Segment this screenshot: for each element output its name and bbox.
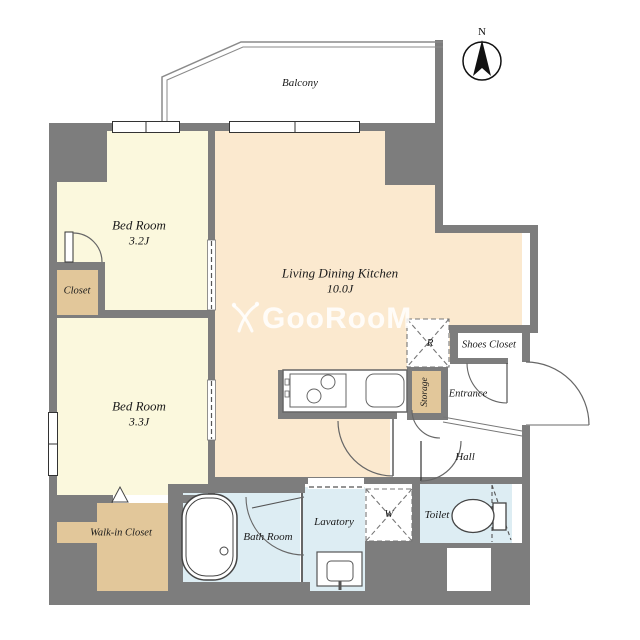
floor-plan: GooRooM Balcony N Bed Room 3.2J Bed Room… bbox=[0, 0, 640, 640]
lavatory-label: Lavatory bbox=[314, 516, 354, 530]
ldk-name: Living Dining Kitchen bbox=[282, 265, 398, 281]
ldk-label: Living Dining Kitchen 10.0J bbox=[282, 265, 398, 296]
storage-label: Storage bbox=[420, 377, 432, 407]
room-ldk bbox=[215, 131, 385, 185]
room-ldk bbox=[215, 185, 435, 233]
watermark: GooRooM bbox=[230, 302, 412, 336]
wall-partition-bedrooms-ldk bbox=[208, 131, 215, 495]
wall-shoes-bottom bbox=[450, 358, 508, 364]
wall-walkin-bath-column bbox=[168, 484, 183, 591]
bedroom-2-label: Bed Room 3.3J bbox=[112, 398, 166, 429]
refrigerator-label: R bbox=[427, 337, 434, 351]
wall-right-upper bbox=[530, 233, 538, 333]
ldk-size: 10.0J bbox=[282, 282, 398, 297]
bedroom-1-size: 3.2J bbox=[112, 234, 166, 249]
bedroom-2-name: Bed Room bbox=[112, 398, 166, 414]
wall-counter-stub bbox=[278, 370, 283, 419]
watermark-text: GooRooM bbox=[262, 302, 412, 336]
bedroom-2-size: 3.3J bbox=[112, 415, 166, 430]
wall-under-counter bbox=[283, 410, 397, 419]
wall-walkin-left-top bbox=[57, 503, 97, 522]
wall-bottom bbox=[49, 591, 530, 605]
wall-shoes-top bbox=[449, 325, 530, 333]
wall-bath-bottom bbox=[168, 582, 310, 591]
wall-top bbox=[49, 123, 443, 131]
wall-lavatory-toilet bbox=[412, 484, 420, 543]
wall-ldk-bottom bbox=[215, 477, 522, 484]
room-hall bbox=[397, 419, 448, 477]
walkin-closet-label: Walk-in Closet bbox=[90, 526, 152, 539]
wall-closet-right bbox=[98, 262, 105, 315]
north-label: N bbox=[478, 26, 486, 38]
entrance-door-icon bbox=[526, 362, 589, 425]
shoes-closet-label: Shoes Closet bbox=[462, 338, 516, 351]
wall-top-left-notch bbox=[57, 131, 107, 182]
bedroom-1-label: Bed Room 3.2J bbox=[112, 217, 166, 248]
wall-walkin-left-bottom bbox=[57, 543, 97, 591]
bedroom-1-name: Bed Room bbox=[112, 217, 166, 233]
wall-right-mid bbox=[522, 333, 530, 362]
bath-room-label: Bath Room bbox=[243, 531, 292, 545]
entrance-door-opening bbox=[522, 362, 530, 425]
room-walkin-closet bbox=[97, 503, 168, 591]
room-ldk bbox=[215, 370, 390, 477]
closet-label: Closet bbox=[64, 284, 91, 297]
washer-label: W bbox=[384, 508, 393, 522]
hall-label: Hall bbox=[455, 451, 475, 465]
toilet-label: Toilet bbox=[425, 509, 450, 523]
wall-entrance-top bbox=[435, 225, 538, 233]
wall-bath-top bbox=[172, 484, 305, 493]
walkin-doorway-opening bbox=[113, 495, 172, 503]
compass-icon bbox=[463, 40, 501, 80]
balcony-label: Balcony bbox=[282, 77, 318, 91]
exterior-notch bbox=[447, 548, 491, 591]
wall-left bbox=[49, 123, 57, 605]
room-lavatory bbox=[303, 487, 365, 591]
wall-ldk-notch bbox=[385, 131, 443, 185]
entrance-label: Entrance bbox=[449, 387, 488, 400]
room-bedroom-1 bbox=[107, 131, 208, 182]
